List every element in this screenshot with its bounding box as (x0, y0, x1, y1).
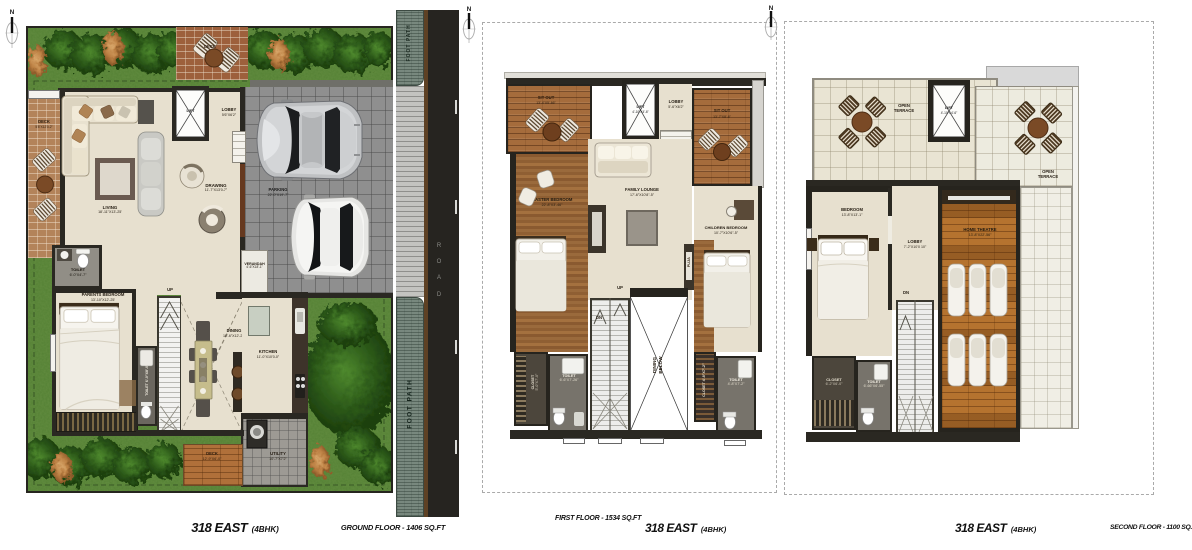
svg-text:N: N (467, 6, 472, 13)
svg-text:DECK: DECK (38, 119, 50, 124)
svg-text:N: N (769, 5, 774, 12)
svg-text:N: N (10, 9, 15, 16)
svg-text:SIT OUT: SIT OUT (538, 95, 555, 100)
svg-text:BELOW: BELOW (658, 356, 663, 374)
svg-text:5'8"X12'0-2": 5'8"X12'0-2" (35, 125, 52, 129)
svg-text:4'-10"X4'-6": 4'-10"X4'-6" (941, 111, 958, 115)
svg-text:LIFT: LIFT (186, 109, 195, 113)
svg-text:DINING: DINING (652, 357, 657, 374)
svg-text:LIFT: LIFT (945, 106, 954, 110)
svg-text:13'-4"X5'-66": 13'-4"X5'-66" (536, 101, 556, 105)
svg-text:SIT OUT: SIT OUT (714, 108, 731, 113)
svg-text:DECK: DECK (204, 44, 216, 49)
svg-text:4'-10"X4'-6": 4'-10"X4'-6" (632, 110, 649, 114)
svg-text:13'-7"X8'-6": 13'-7"X8'-6" (713, 115, 731, 119)
svg-text:LIFT: LIFT (636, 105, 645, 109)
